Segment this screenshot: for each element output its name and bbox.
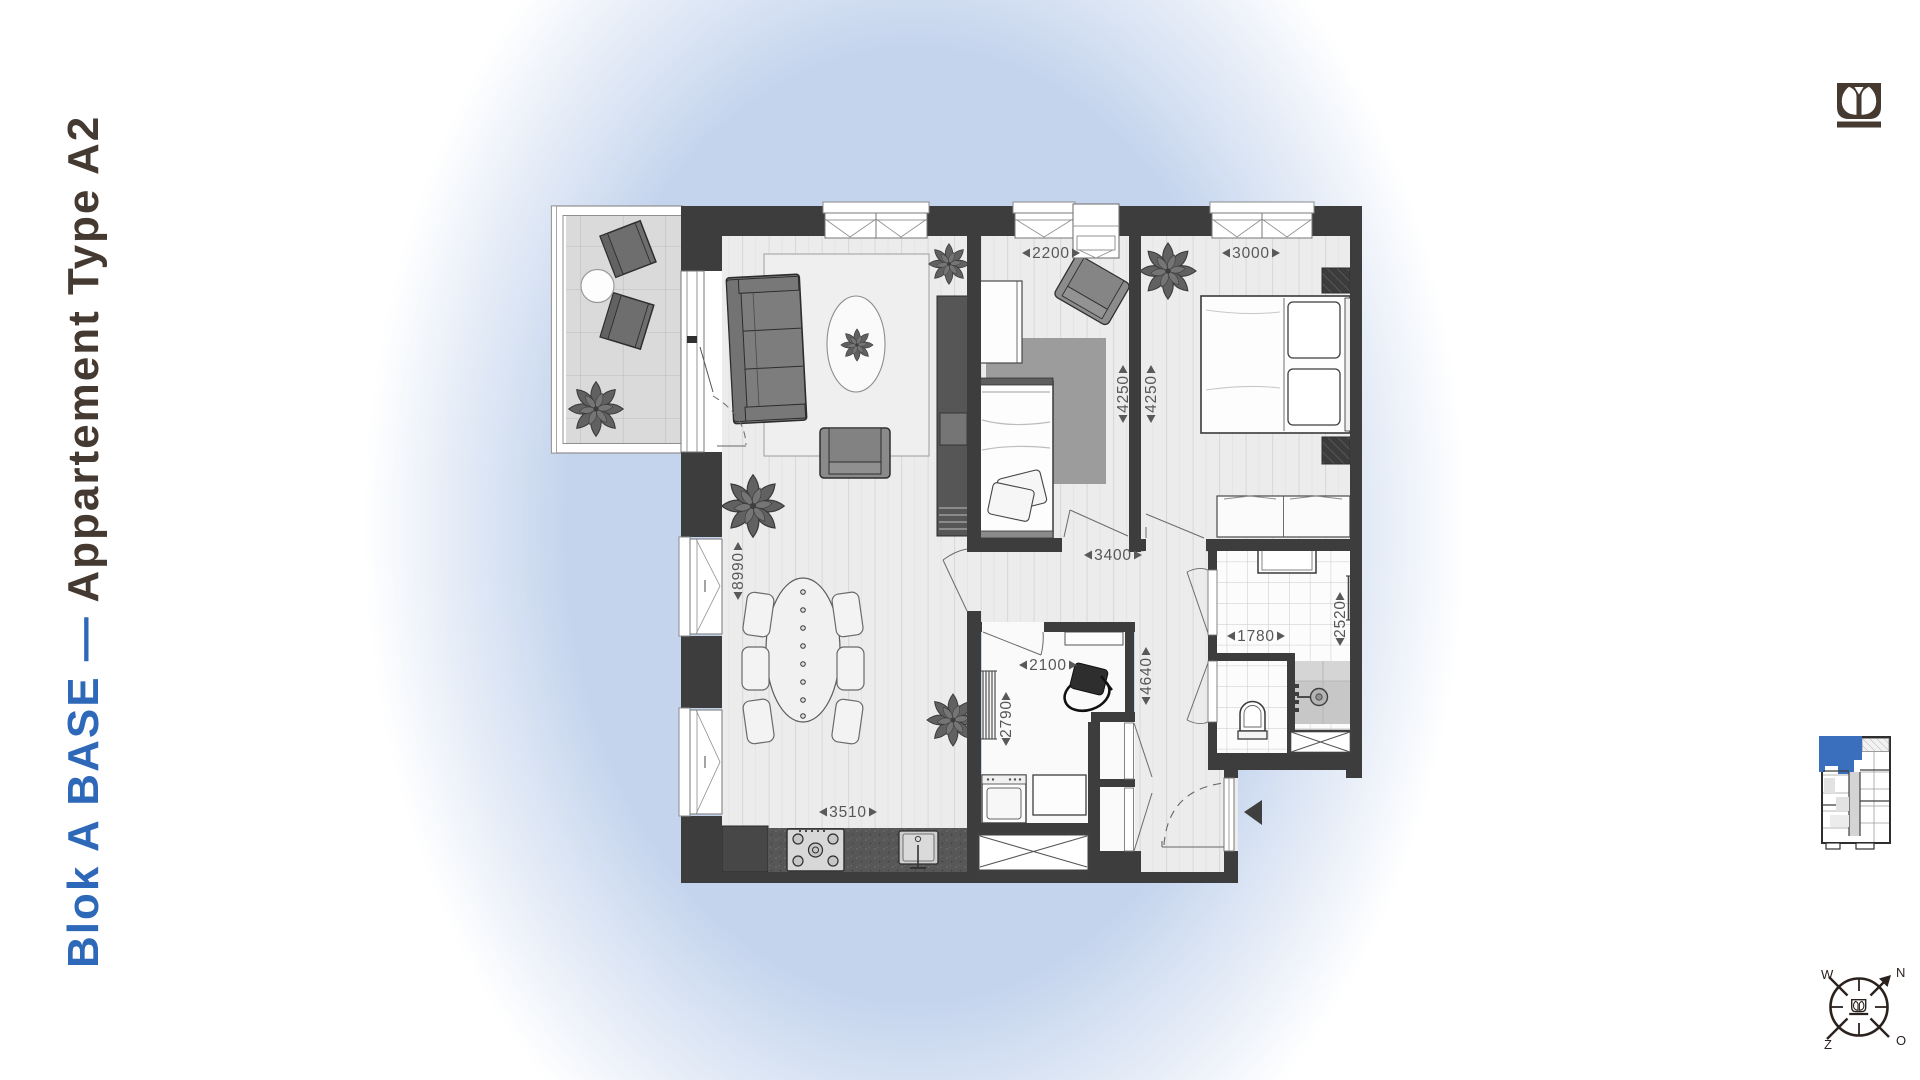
svg-text:3510: 3510 [829, 804, 867, 821]
svg-text:2100: 2100 [1029, 657, 1067, 674]
svg-text:4250: 4250 [1115, 375, 1132, 413]
svg-text:2790: 2790 [998, 700, 1015, 738]
svg-text:Z: Z [1824, 1037, 1832, 1052]
svg-text:4250: 4250 [1143, 375, 1160, 413]
svg-text:Blok A BASE — Appartement Type: Blok A BASE — Appartement Type A2 [59, 115, 108, 968]
svg-text:4640: 4640 [1138, 657, 1155, 695]
svg-text:O: O [1896, 1033, 1906, 1048]
svg-text:N: N [1896, 965, 1905, 980]
svg-text:2520: 2520 [1332, 600, 1349, 638]
svg-text:2200: 2200 [1032, 245, 1070, 262]
svg-text:W: W [1821, 967, 1834, 982]
svg-text:3400: 3400 [1094, 547, 1132, 564]
svg-text:8990: 8990 [730, 552, 747, 590]
svg-text:3000: 3000 [1232, 245, 1270, 262]
svg-text:1780: 1780 [1237, 628, 1275, 645]
